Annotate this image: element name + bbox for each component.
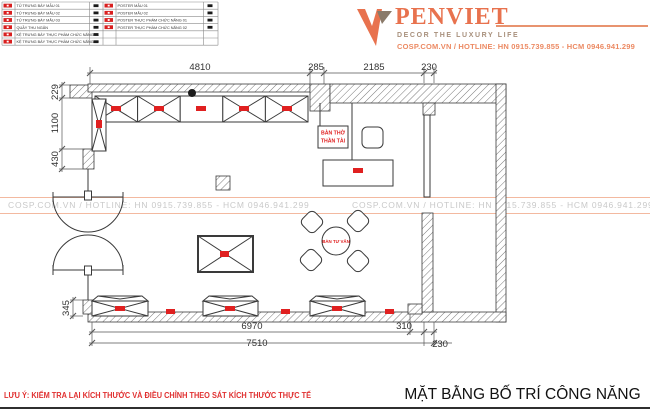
legend-item-marker-dot	[7, 34, 9, 36]
column-center	[216, 176, 230, 190]
wall-left-segment	[83, 149, 94, 169]
wall-top-right	[330, 84, 506, 103]
legend-item-marker-dot	[108, 19, 110, 21]
dim-345: 345	[61, 300, 72, 316]
altar-label-line1: BÀN THỜ	[321, 129, 346, 137]
sheet-title: MẶT BẰNG BỐ TRÍ CÔNG NĂNG	[400, 386, 645, 404]
legend-item-symbol	[208, 19, 213, 22]
legend-item-label: POSTER MẪU 02	[118, 10, 148, 15]
dim-230-top: 230	[421, 62, 437, 73]
legend-item-symbol	[94, 26, 99, 29]
legend-item-symbol	[94, 4, 99, 7]
legend-item-symbol	[94, 12, 99, 15]
legend-item-marker-dot	[108, 26, 110, 28]
legend-item-label: KỆ TRƯNG BÀY THỰC PHẨM CHỨC NĂNG 01	[17, 32, 100, 37]
ceiling-device-dot	[188, 89, 196, 97]
wall-top-left	[88, 84, 310, 92]
wall-bottom	[88, 312, 506, 322]
chair	[362, 127, 383, 148]
consultation-set: BÀN TƯ VẤN	[298, 208, 370, 273]
dim-230-bottom: 230	[432, 339, 448, 350]
dim-229: 229	[50, 84, 61, 100]
wall-partition-bottom	[422, 213, 433, 312]
legend-item-symbol	[94, 19, 99, 22]
legend-item-marker-dot	[7, 26, 9, 28]
dim-285: 285	[308, 62, 324, 73]
display-table	[198, 236, 253, 272]
wall-step	[408, 304, 422, 314]
legend-item-marker-dot	[7, 41, 9, 43]
legend-item-label: TỦ TRƯNG BÀY MẪU 02	[17, 10, 60, 15]
legend-item-marker-dot	[7, 5, 9, 7]
legend-item-label: POSTER THỰC PHẨM CHỨC NĂNG 02	[118, 25, 188, 30]
dim-7510: 7510	[246, 338, 267, 349]
chair	[345, 208, 370, 233]
dim-345: 345	[61, 297, 83, 319]
title-block-rule	[0, 407, 650, 409]
legend-item-marker-dot	[108, 5, 110, 7]
floor-plan-canvas: COSP.COM.VN / HOTLINE: HN 0915.739.855 -…	[0, 0, 650, 416]
legend-item-marker-dot	[7, 19, 9, 21]
legend-item-label: POSTER MẪU 01	[118, 3, 148, 8]
chair	[345, 248, 370, 273]
consult-table-label: BÀN TƯ VẤN	[322, 239, 350, 244]
left-wall-cabinet	[92, 99, 106, 151]
drawing-sheet: PENVIET DECOR THE LUXURY LIFE COSP.COM.V…	[0, 0, 650, 416]
altar-table	[318, 126, 348, 148]
dim-6970: 6970	[241, 321, 262, 332]
dim-1100: 1100	[50, 113, 61, 133]
legend-item-symbol	[208, 4, 213, 7]
partition-panel	[424, 115, 430, 197]
wall-partition-top	[423, 103, 435, 115]
altar-and-desk: BÀN THỜ THẦN TÀI	[318, 103, 393, 186]
dim-2185: 2185	[363, 62, 384, 73]
desk-marker	[353, 168, 363, 173]
legend-item-label: KỆ TRƯNG BÀY THỰC PHẨM CHỨC NĂNG 02	[17, 39, 100, 44]
revision-note: LƯU Ý: KIỂM TRA LẠI KÍCH THƯỚC VÀ ĐIỀU C…	[4, 391, 311, 400]
watermark-band: COSP.COM.VN / HOTLINE: HN 0915.739.855 -…	[0, 198, 650, 214]
altar-label-line2: THẦN TÀI	[321, 138, 346, 145]
legend-item-marker-dot	[108, 12, 110, 14]
entrance-door-swing	[53, 169, 123, 300]
legend-item-label: TỦ TRƯNG BÀY MẪU 01	[17, 3, 60, 8]
wall-right	[496, 84, 506, 322]
legend-item-label: TỦ TRƯNG BÀY MẪU 03	[17, 18, 60, 23]
legend-item-label: QUẦY THU NGÂN	[17, 25, 49, 30]
legend-table: TỦ TRƯNG BÀY MẪU 01TỦ TRƯNG BÀY MẪU 02TỦ…	[2, 2, 218, 45]
legend-item-symbol	[208, 26, 213, 29]
legend-item-marker-dot	[7, 12, 9, 14]
dim-310: 310	[396, 321, 412, 332]
legend-item-label: POSTER THỰC PHẨM CHỨC NĂNG 01	[118, 18, 188, 23]
legend-item-symbol	[94, 40, 99, 43]
dim-top: 4810 285 2185 230	[87, 62, 437, 84]
legend-item-symbol	[94, 33, 99, 36]
legend-item-symbol	[208, 12, 213, 15]
top-cabinet-row	[95, 89, 308, 122]
chair	[298, 247, 323, 272]
dim-4810: 4810	[189, 62, 210, 73]
dim-430: 430	[50, 151, 61, 167]
bottom-shelves	[92, 296, 394, 316]
